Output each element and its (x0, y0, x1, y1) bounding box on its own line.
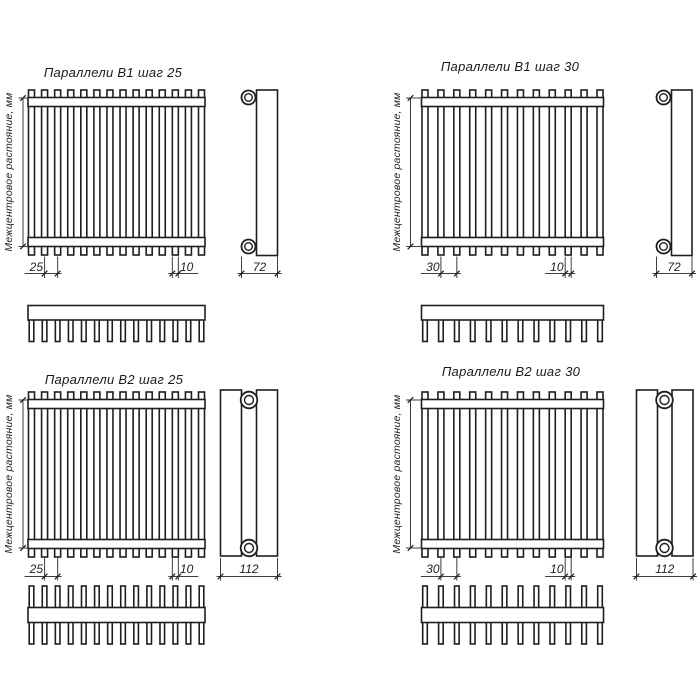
panel-geometry (406, 390, 697, 644)
depth-dim-label: 72 (253, 260, 267, 274)
tube-width-dim-label: 10 (180, 260, 194, 274)
panel-b2-step30: Параллели В2 шаг 30 Межцентровое растоян… (391, 364, 697, 644)
pitch-dim-label: 30 (426, 562, 440, 576)
panel-title: Параллели В1 шаг 30 (441, 59, 580, 74)
pitch-dim-label: 25 (29, 562, 44, 576)
depth-dim-label: 72 (667, 260, 681, 274)
tube-width-dim-label: 10 (180, 562, 194, 576)
panel-geometry (19, 390, 282, 644)
radiator-drawing: Параллели В1 шаг 25 Межцентровое растоян… (0, 0, 700, 700)
top-view (28, 586, 205, 644)
depth-dim-label: 112 (655, 562, 674, 576)
front-view (28, 90, 205, 255)
pitch-dim-label: 25 (29, 260, 44, 274)
side-view (221, 390, 278, 556)
drawing-sheet: Параллели В1 шаг 25 Межцентровое растоян… (0, 0, 700, 700)
height-dimension (406, 95, 421, 249)
panel-title: Параллели В1 шаг 25 (44, 65, 183, 80)
tube-width-dim-label: 10 (550, 260, 564, 274)
axis-label: Межцентровое растояние, мм (391, 92, 403, 251)
tube-width-dim-label: 10 (550, 562, 564, 576)
axis-label: Межцентровое растояние, мм (3, 394, 15, 553)
side-view (242, 90, 278, 256)
side-view (637, 390, 694, 556)
panel-geometry (19, 90, 282, 342)
top-view (422, 586, 604, 644)
panel-b1-step25: Параллели В1 шаг 25 Межцентровое растоян… (3, 65, 282, 342)
panel-b2-step25: Параллели В2 шаг 25 Межцентровое растоян… (3, 372, 282, 644)
axis-label: Межцентровое растояние, мм (391, 394, 403, 553)
top-view (422, 306, 604, 342)
height-dimension (406, 397, 421, 551)
depth-dim-label: 112 (239, 562, 258, 576)
panel-title: Параллели В2 шаг 30 (442, 364, 581, 379)
front-view (422, 90, 604, 255)
front-view (28, 392, 205, 557)
side-view (657, 90, 693, 256)
pitch-dim-label: 30 (426, 260, 440, 274)
panel-title: Параллели В2 шаг 25 (45, 372, 184, 387)
panel-geometry (406, 90, 696, 342)
height-dimension (19, 95, 28, 249)
top-view (28, 306, 205, 342)
panel-b1-step30: Параллели В1 шаг 30 Межцентровое растоян… (391, 59, 696, 342)
axis-label: Межцентровое растояние, мм (3, 92, 15, 251)
height-dimension (19, 397, 28, 551)
front-view (422, 392, 604, 557)
